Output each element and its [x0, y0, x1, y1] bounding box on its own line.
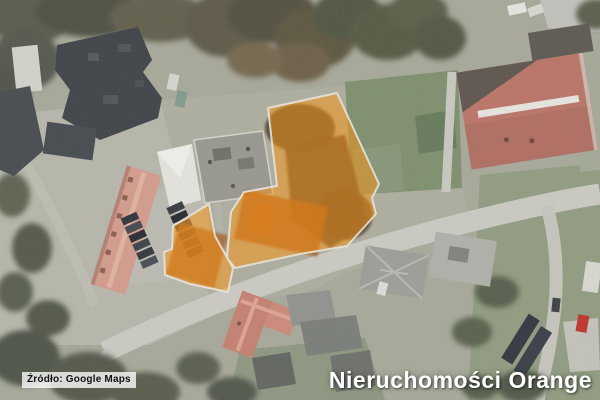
imagery-grain-overlay [0, 0, 600, 400]
satellite-map [0, 0, 600, 400]
map-viewport[interactable]: Źródło: Google Maps Nieruchomości Orange [0, 0, 600, 400]
map-attribution: Źródło: Google Maps [22, 372, 136, 388]
attribution-label: Źródło: Google Maps [27, 374, 131, 385]
brand-watermark: Nieruchomości Orange [329, 367, 592, 394]
